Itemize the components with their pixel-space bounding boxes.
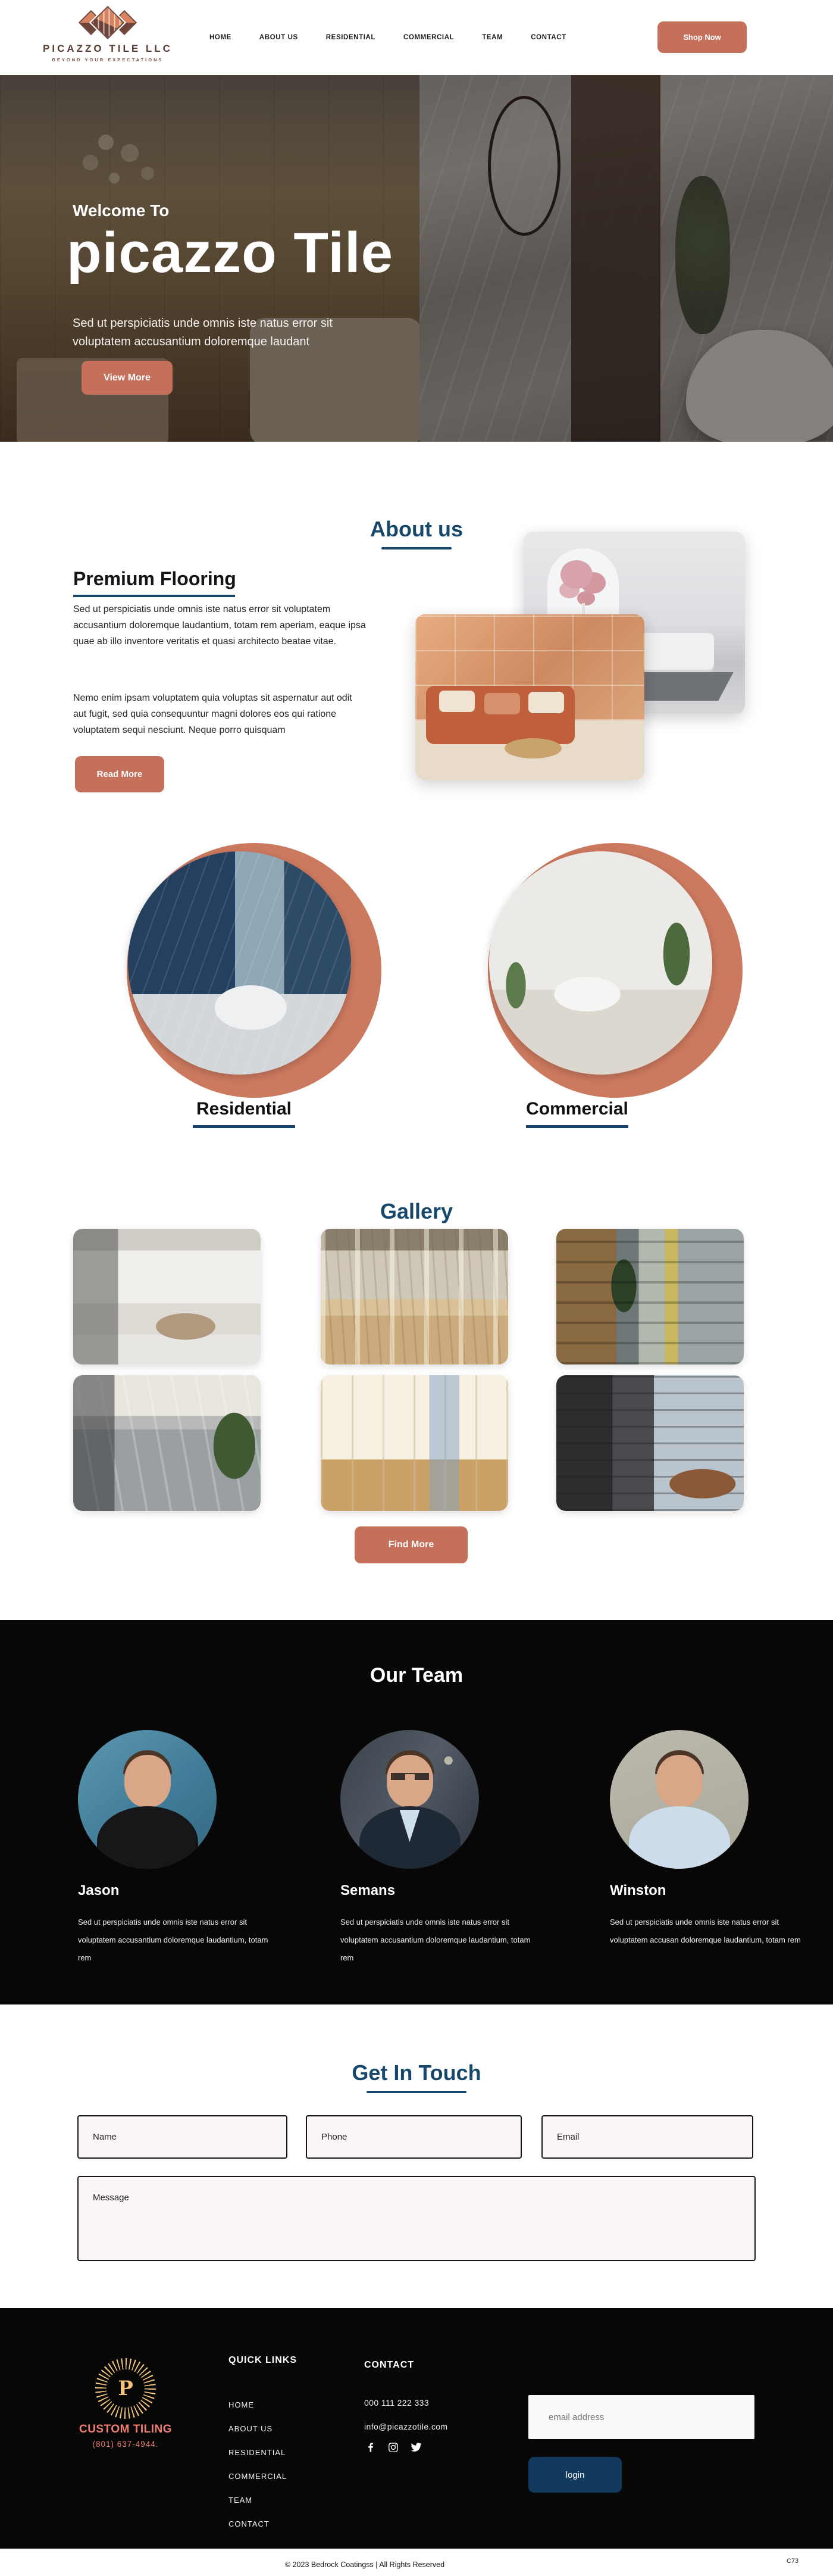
phone-input[interactable] [306,2115,522,2159]
residential-category-card[interactable] [127,843,381,1098]
message-textarea[interactable] [77,2176,756,2261]
nav-item-home[interactable]: HOME [209,34,231,41]
hero-subtitle: Sed ut perspiciatis unde omnis iste natu… [73,314,333,351]
email-input[interactable] [541,2115,753,2159]
brand-logo[interactable]: PICAZZO TILE LLC BEYOND YOUR EXPECTATION… [21,6,194,63]
gallery-image-cream-kitchen[interactable] [321,1375,508,1511]
head-shape [124,1755,171,1807]
team-member-bio: Sed ut perspiciatis unde omnis iste natu… [610,1913,803,1949]
sunburst-core: P [107,2369,145,2408]
view-more-button[interactable]: View More [82,361,173,395]
pink-tree-shape [560,560,593,589]
team-member-bio: Sed ut perspiciatis unde omnis iste natu… [78,1913,271,1967]
login-button[interactable]: login [528,2457,622,2493]
gallery-image-office-lounge[interactable] [556,1375,744,1511]
about-paragraph-2: Nemo enim ipsam voluptatem quia voluptas… [73,690,366,738]
hero-section: Welcome To picazzo Tile Sed ut perspicia… [0,75,833,442]
cushions-shape [439,691,475,712]
team-photo-jason [78,1730,217,1869]
nav-item-residential[interactable]: RESIDENTIAL [326,34,375,41]
footer-sunburst-logo: P [95,2358,156,2419]
about-paragraph-1: Sed ut perspiciatis unde omnis iste natu… [73,601,366,650]
hero-title: picazzo Tile [67,220,393,286]
social-links [364,2441,422,2454]
torso-shape [97,1806,198,1869]
gallery-image-outdoor-walkway[interactable] [73,1375,261,1511]
nav-item-commercial[interactable]: COMMERCIAL [403,34,454,41]
round-table-shape [505,738,562,758]
commercial-category-card[interactable] [488,843,743,1098]
about-image-terracotta-wall [415,614,644,780]
quick-links-title: QUICK LINKS [228,2355,297,2366]
logo-letter: P [118,2377,133,2400]
newsletter-email-input[interactable] [528,2395,754,2439]
twitter-icon[interactable] [409,2441,422,2454]
page-code: C73 [787,2558,798,2565]
footer-link-home[interactable]: HOME [228,2400,254,2409]
copyright-text: © 2023 Bedrock Coatingss | All Rights Re… [0,2561,729,2569]
gallery-image-mirror-hall[interactable] [321,1229,508,1365]
footer-link-contact[interactable]: CONTACT [228,2519,270,2528]
team-member-bio: Sed ut perspiciatis unde omnis iste natu… [340,1913,534,1967]
gallery-image-dining-room[interactable] [73,1229,261,1365]
head-shape [387,1755,433,1807]
footer-link-residential[interactable]: RESIDENTIAL [228,2448,286,2457]
nav-item-team[interactable]: TEAM [482,34,503,41]
hero-subtitle-line2: voluptatem accusantium doloremque laudan… [73,333,333,351]
residential-photo [128,851,351,1075]
team-member-name: Semans [340,1882,395,1899]
find-more-button[interactable]: Find More [355,1526,468,1563]
team-section-title: Our Team [0,1664,833,1687]
residential-label: Residential [149,1099,339,1128]
hero-subtitle-line1: Sed ut perspiciatis unde omnis iste natu… [73,314,333,333]
torso-shape [629,1806,730,1869]
diamond-center-icon [91,6,125,40]
nav-item-contact[interactable]: CONTACT [531,34,566,41]
commercial-label: Commercial [482,1099,672,1128]
footer-link-about-us[interactable]: ABOUT US [228,2424,273,2433]
footer-contact-title: CONTACT [364,2360,414,2371]
name-input[interactable] [77,2115,287,2159]
glasses-shape [391,1773,429,1780]
team-member-name: Winston [610,1882,666,1899]
hero-welcome-text: Welcome To [73,201,169,220]
footer-contact-phone: 000 111 222 333 [364,2398,429,2408]
site-header: PICAZZO TILE LLC BEYOND YOUR EXPECTATION… [0,0,833,75]
gallery-image-office-corridor[interactable] [556,1229,744,1365]
team-photo-winston [610,1730,749,1869]
footer-link-commercial[interactable]: COMMERCIAL [228,2472,287,2481]
head-shape [656,1755,703,1807]
page: PICAZZO TILE LLC BEYOND YOUR EXPECTATION… [0,0,833,2576]
about-heading: Premium Flooring [73,568,236,597]
footer-link-team[interactable]: TEAM [228,2496,252,2505]
brand-tagline: BEYOND YOUR EXPECTATIONS [21,57,194,63]
gallery-section-title: Gallery [0,1199,833,1232]
footer-logo-name: CUSTOM TILING [64,2423,187,2436]
shop-now-button[interactable]: Shop Now [657,21,747,53]
instagram-icon[interactable] [387,2441,400,2454]
commercial-photo [489,851,712,1075]
brand-diamonds-icon [21,6,194,39]
torso-shape [359,1806,461,1869]
brand-name: PICAZZO TILE LLC [21,43,194,55]
nav-item-about-us[interactable]: ABOUT US [259,34,298,41]
main-nav: HOME ABOUT US RESIDENTIAL COMMERCIAL TEA… [209,0,566,75]
footer-contact-email[interactable]: info@picazzotile.com [364,2422,448,2431]
team-photo-semans [340,1730,479,1869]
team-member-name: Jason [78,1882,119,1899]
footer-logo-phone: (801) 637-4944. [64,2440,187,2449]
facebook-icon[interactable] [364,2441,377,2454]
contact-section-title: Get In Touch [0,2060,833,2093]
read-more-button[interactable]: Read More [75,756,164,792]
